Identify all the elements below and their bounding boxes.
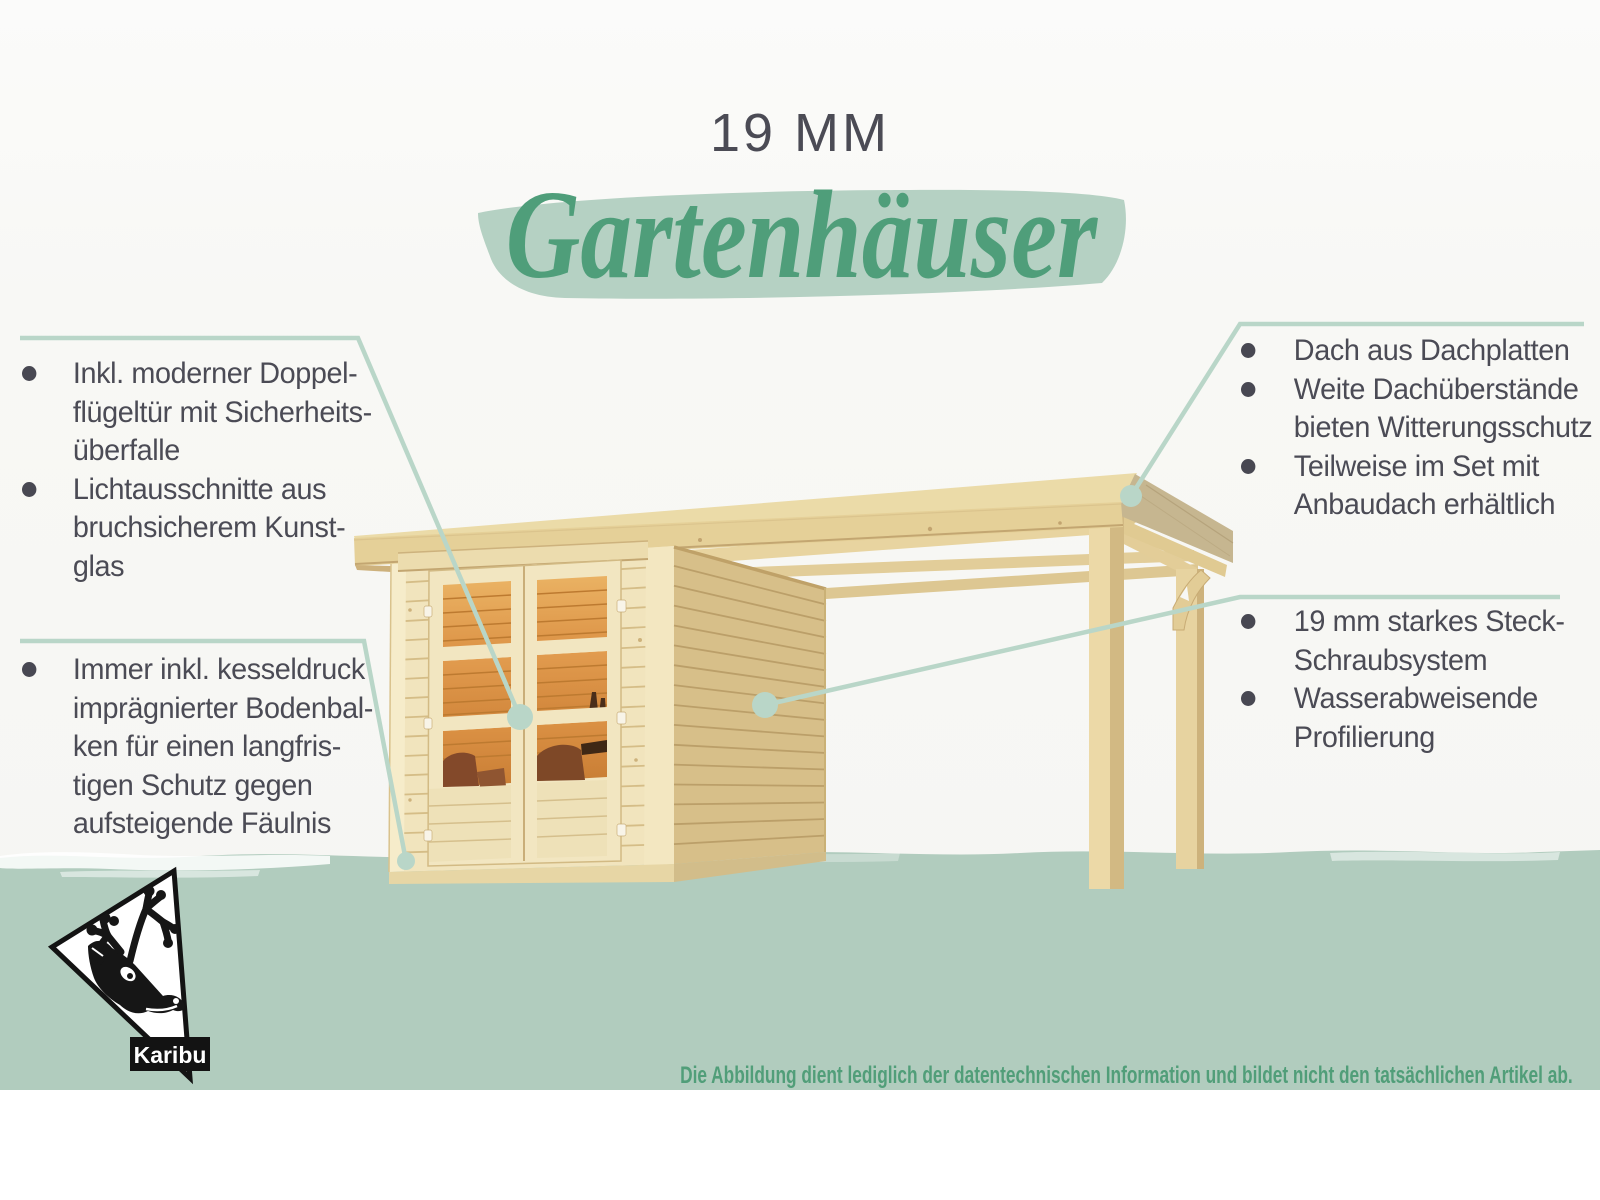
svg-text:Karibu: Karibu (134, 1042, 207, 1068)
